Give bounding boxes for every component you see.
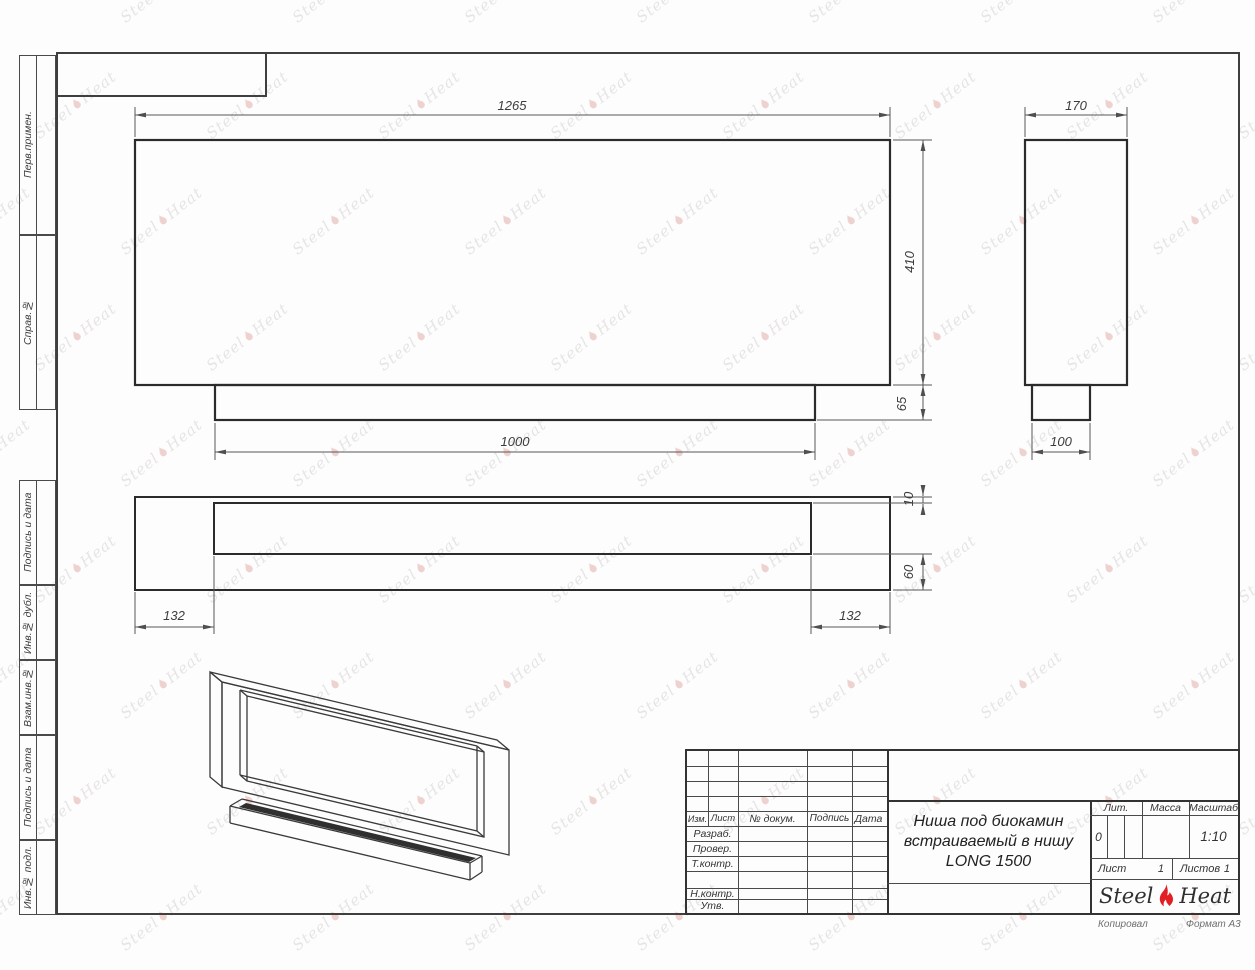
title-block-line [1124, 815, 1125, 858]
col-header-dokum: № докум. [738, 811, 807, 826]
company-logo: Steel Heat [1090, 879, 1240, 913]
margin-label-podpis-data-1: Подпись и дата [20, 481, 36, 584]
margin-label-podpis-data-2: Подпись и дата [20, 736, 36, 839]
lit-header: Лит. [1090, 800, 1142, 815]
margin-cell-vzam-inv: Взам.инв.№ [19, 660, 56, 735]
title-block-line [1107, 815, 1108, 858]
margin-cell-perv-primen: Перв.примен. [19, 55, 56, 235]
document-title: Ниша под биокамин встраиваемый в нишу LO… [887, 800, 1090, 883]
title-block-line [687, 796, 887, 797]
format-label: Формат А3 [1186, 919, 1241, 930]
margin-cell-podpis-data-1: Подпись и дата [19, 480, 56, 585]
margin-label-vzam-inv: Взам.инв.№ [20, 661, 36, 734]
title-block-line [887, 883, 1090, 884]
margin-label-perv-primen: Перв.примен. [20, 56, 36, 234]
massa-header: Масса [1142, 800, 1189, 815]
margin-cell-inv-dubl: Инв.№ дубл. [19, 585, 56, 660]
flame-icon [1156, 883, 1176, 910]
drawing-sheet: SteelHeatSteelHeatSteelHeatSteelHeatStee… [0, 0, 1255, 970]
title-block-line [687, 781, 887, 782]
masshtab-header: Масштаб [1189, 800, 1238, 815]
lit-value: 0 [1090, 815, 1107, 858]
margin-label-inv-dubl: Инв.№ дубл. [20, 586, 36, 659]
title-block-line [687, 871, 887, 872]
list-label: Лист [1098, 863, 1126, 875]
masshtab-value: 1:10 [1189, 815, 1238, 858]
margin-cell-inv-podl: Инв.№ подл. [19, 840, 56, 915]
margin-label-sprav-no: Справ.№ [20, 236, 36, 409]
document-title-line2: встраиваемый в нишу [904, 833, 1073, 851]
copied-label: Копировал [1098, 919, 1148, 930]
top-left-stamp-box [56, 52, 267, 97]
listov-value: 1 [1224, 863, 1230, 875]
row-label-prover: Провер. [687, 841, 738, 856]
title-block: Изм. Лист № докум. Подпись Дата Разраб. … [685, 749, 1240, 915]
col-header-data: Дата [852, 811, 885, 826]
col-header-list: Лист [708, 811, 738, 826]
listov-label: Листов [1180, 863, 1220, 875]
row-label-razrab: Разраб. [687, 826, 738, 841]
col-header-podpis: Подпись [807, 811, 852, 826]
document-title-line1: Ниша под биокамин [914, 813, 1064, 831]
title-block-line [687, 766, 887, 767]
row-label-tkontr: Т.контр. [687, 856, 738, 871]
list-value: 1 [1158, 863, 1164, 875]
row-label-utv: Утв. [687, 899, 738, 912]
document-title-line3: LONG 1500 [946, 853, 1031, 871]
logo-steel-text: Steel [1099, 884, 1153, 908]
margin-cell-sprav-no: Справ.№ [19, 235, 56, 410]
margin-cell-podpis-data-2: Подпись и дата [19, 735, 56, 840]
logo-heat-text: Heat [1179, 884, 1231, 908]
col-header-izm: Изм. [687, 811, 708, 826]
margin-label-inv-podl: Инв.№ подл. [20, 841, 36, 914]
